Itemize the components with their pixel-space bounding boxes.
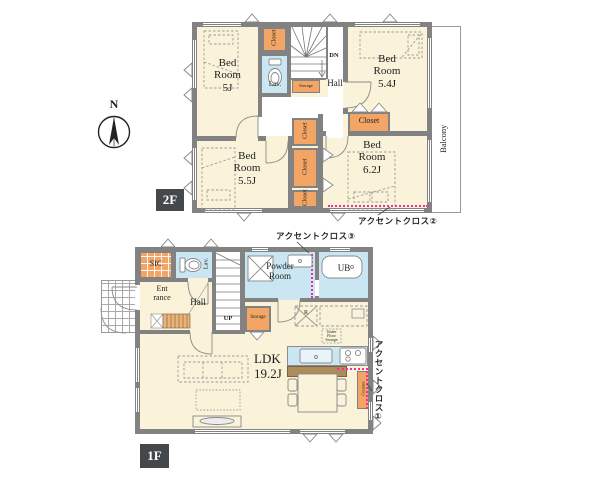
room-label-storage-1f: Storage	[245, 315, 271, 321]
window	[355, 22, 420, 27]
room-label-closet-mid-c: Closet	[301, 178, 308, 218]
room-label-lav-2f: Lav.	[262, 81, 288, 89]
wall-segment	[343, 108, 348, 114]
bath-door-gap	[315, 280, 319, 296]
under-floor-storage-label: Under Floor Storage	[322, 330, 341, 343]
counter-label: Counter	[360, 374, 365, 404]
wall-segment	[140, 278, 188, 282]
wall-segment	[135, 330, 190, 334]
window	[330, 208, 424, 213]
room-label-closet-mid-a: Closet	[301, 111, 308, 151]
room-label-bedroom-5j: Bed Room 5J	[197, 57, 258, 94]
wall-segment	[258, 136, 266, 141]
front-door-gap	[135, 285, 140, 310]
room-label-closet-top: Closet	[270, 18, 277, 58]
accent-wallpaper-line-2f	[328, 205, 428, 207]
room-label-hall-1f: Hall	[184, 297, 212, 307]
wall-segment	[258, 93, 291, 97]
accent-wallpaper-line-counter	[366, 371, 368, 409]
accent-note-1f-right: アクセントクロス①	[374, 340, 385, 430]
wall-segment	[245, 298, 278, 302]
window	[252, 247, 268, 252]
wall-segment	[212, 247, 216, 330]
floor-1-tag: 1F	[140, 444, 169, 468]
stairs-down-label: DN	[326, 52, 342, 59]
window	[330, 247, 350, 252]
window	[135, 348, 140, 382]
room-label-balcony: Balcony	[439, 109, 449, 169]
accent-note-1f-top: アクセントクロス③	[276, 230, 356, 242]
stairs-up-label: UP	[218, 315, 238, 322]
floor-plan-canvas: Bed Room 5J Bed Room 5.4J Bed Room 5.5J …	[0, 0, 600, 485]
wall-segment	[348, 131, 427, 136]
wall-segment	[258, 27, 262, 117]
room-label-storage-2f: Storage	[292, 83, 320, 88]
accent-wallpaper-line-powder	[311, 254, 313, 298]
compass-icon	[99, 117, 130, 148]
refrigerator-label: R	[300, 310, 312, 317]
room-label-sic: SIC	[140, 260, 172, 269]
unit-bath	[319, 252, 368, 300]
window	[300, 429, 345, 434]
floor-2-tag: 2F	[156, 189, 184, 211]
window	[205, 208, 262, 213]
room-label-ldk: LDK 19.2J	[254, 352, 304, 381]
room-label-hall-2f: Hall	[318, 78, 352, 88]
window	[427, 140, 432, 202]
room-label-lav-1f: Lav.	[202, 249, 209, 279]
room-label-entrance: Ent rance	[142, 285, 182, 303]
room-label-ub: UB	[330, 263, 358, 273]
room-label-closet-right: Closet	[348, 117, 390, 126]
wall-segment	[300, 298, 373, 302]
stairwell-2f	[290, 27, 326, 79]
room-label-bedroom-6-2j: Bed Room 6.2J	[341, 139, 403, 176]
window	[135, 388, 140, 412]
accent-note-2f: アクセントクロス②	[358, 215, 438, 227]
wall-segment	[172, 252, 176, 278]
compass-north-label: N	[104, 98, 124, 111]
wall-segment	[192, 136, 236, 141]
room-label-powder-room: Powder Room	[250, 261, 310, 281]
window	[203, 22, 241, 27]
room-label-bedroom-5-4j: Bed Room 5.4J	[350, 53, 424, 90]
accent-wallpaper-line-counter-top	[337, 368, 368, 370]
wall-segment	[343, 27, 348, 82]
window	[195, 429, 290, 434]
window	[427, 38, 432, 108]
window	[192, 148, 197, 200]
wall-segment	[318, 114, 323, 208]
wall-segment	[320, 131, 326, 136]
wall-segment	[240, 247, 245, 334]
wall-segment	[288, 141, 292, 208]
wall-segment	[212, 330, 245, 334]
room-label-bedroom-5-5j: Bed Room 5.5J	[216, 150, 278, 187]
